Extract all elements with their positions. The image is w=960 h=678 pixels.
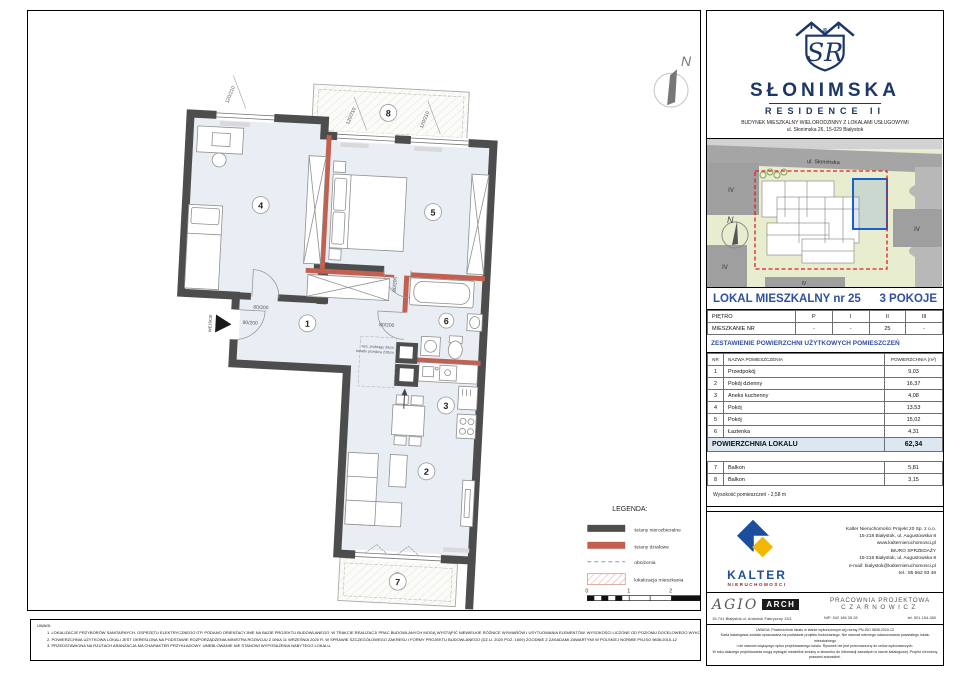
table-row: MIESZKANIE NR- -25 - [708, 323, 943, 335]
svg-text:II: II [823, 27, 827, 34]
legend-swatch-partition [587, 542, 625, 549]
chair [212, 153, 227, 168]
svg-text:IV: IV [914, 227, 920, 233]
contact-line: 15-218 Białystok, ul. Augustowska 8 [803, 555, 936, 562]
sr-monogram: SR [807, 38, 844, 68]
svg-text:IV: IV [722, 265, 728, 271]
note-item: 3. PRZEDSTAWIONA NA RZUTACH ARANŻACJA MA… [37, 643, 694, 650]
street-label: ul. Słonimska [807, 159, 841, 166]
building-description: BUDYNEK MIESZKALNY WIELORODZINNY Z LOKAL… [711, 120, 939, 126]
contact-line: 15-218 Białystok, ul. Augustowska 8 [803, 533, 936, 540]
scale-bar: 0 1 2 3 [585, 589, 700, 601]
svg-text:80/200: 80/200 [379, 322, 395, 329]
architect-address: 15-741 Białystok ul. Antoniuk Fabryczny … [712, 616, 822, 621]
svg-text:1: 1 [305, 319, 311, 329]
table-row: 5Pokój15,02 [708, 414, 943, 426]
legend: LEGENDA: ściany nierozbieralne ściany dz… [587, 506, 683, 585]
kalter-subname: NIERUCHOMOŚCI [711, 582, 803, 587]
apartment-outline [168, 114, 494, 561]
svg-text:ściany działowe: ściany działowe [634, 544, 669, 550]
svg-text:2: 2 [424, 467, 430, 477]
stove [456, 414, 476, 439]
svg-text:4: 4 [258, 200, 264, 210]
agio-logo-block: AGIO ARCH 15-741 Białystok ul. Antoniuk … [712, 597, 822, 621]
svg-text:N: N [727, 215, 734, 225]
contact-line: www.kalternieruchomosci.pl [803, 540, 936, 547]
chair [411, 396, 423, 406]
table-row: 1Przedpokój9,03 [708, 366, 943, 378]
disclaimer-line: W toku dalszego projektowania mogą wystą… [711, 650, 939, 661]
info-panel: II SR SŁONIMSKA RESIDENCE II BUDYNEK MIE… [706, 10, 944, 666]
fridge [458, 386, 478, 410]
table-row: 6Łazienka4,31 [708, 426, 943, 438]
brand-underline [769, 103, 881, 104]
balcony-table: 7Balkon5,81 8Balkon3,15 [707, 461, 943, 486]
developer-logo-block: II SR SŁONIMSKA RESIDENCE II BUDYNEK MIE… [707, 11, 943, 139]
brand-name: SŁONIMSKA [711, 80, 939, 102]
coffee-table [389, 454, 408, 487]
contact-line: tel.: 85 662 93 48 [803, 570, 936, 577]
svg-text:80/200: 80/200 [253, 305, 269, 312]
svg-text:IV: IV [728, 188, 734, 194]
site-plan: ul. Słonimska IV IV IV IV [707, 139, 943, 288]
unit-title-bar: LOKAL MIESZKALNY nr 25 3 POKOJE [707, 288, 943, 310]
area-table: NR NAZWA POMIESZCZENIA POWIERZCHNIA (m²)… [707, 353, 943, 452]
table-row: 3Aneks kuchenny4,08 [708, 390, 943, 402]
floor-table: PIĘTROP III III MIESZKANIE NR- -25 - [707, 310, 943, 335]
svg-text:1: 1 [627, 589, 630, 595]
svg-text:7: 7 [395, 577, 401, 587]
sr-emblem-icon: II SR [782, 17, 868, 73]
highlighted-unit [853, 179, 887, 229]
building-address: ul. Słonimska 26, 15-029 Białystok [711, 127, 939, 133]
table-row: 2Pokój dzienny16,37 [708, 378, 943, 390]
note-item: 2. POWIERZCHNIA UŻYTKOWA LOKALI JEST OKR… [37, 637, 694, 644]
contact-line: BIURO SPRZEDAŻY [803, 548, 936, 555]
unit-number-title: LOKAL MIESZKALNY nr 25 [713, 293, 861, 305]
notes-box: UWAGI: 1. LOKALIZACJE PRZYBORÓW SANITARN… [30, 619, 701, 661]
note-item: 1. LOKALIZACJE PRZYBORÓW SANITARNYCH, OS… [37, 630, 694, 637]
north-arrow-icon: N [654, 53, 692, 107]
agio-arch-badge: ARCH [762, 599, 799, 610]
chair [396, 395, 408, 405]
nightstand [333, 161, 346, 173]
area-table-section: NR NAZWA POMIESZCZENIA POWIERZCHNIA (m²)… [707, 353, 943, 507]
svg-text:lokalizacja mieszkania: lokalizacja mieszkania [634, 578, 683, 584]
ceiling-height-note: Wysokość pomieszczeń - 2,58 m [707, 486, 943, 506]
north-label: N [681, 53, 692, 69]
table-row: 4Pokój13,53 [708, 402, 943, 414]
dining-table [391, 405, 424, 437]
kalter-logo-block: KALTER NIERUCHOMOŚCI [711, 517, 803, 587]
floorplan-frame: N [27, 10, 701, 611]
total-area-label: POWIERZCHNIA LOKALU [708, 438, 885, 452]
kitchen-sink [422, 366, 433, 377]
brand-subname: RESIDENCE II [711, 106, 939, 116]
legend-swatch-location [587, 574, 625, 585]
entrance-label: WEJŚCIE [207, 314, 213, 332]
kalter-name: KALTER [711, 568, 803, 582]
svg-text:8: 8 [386, 108, 392, 118]
chair [394, 436, 406, 446]
catalog-page: N [0, 0, 960, 678]
svg-text:0: 0 [585, 589, 588, 595]
table-row: 8Balkon3,15 [708, 474, 943, 486]
rooms-count-title: 3 POKOJE [879, 293, 937, 305]
svg-text:ściany nierozbieralne: ściany nierozbieralne [634, 527, 681, 533]
svg-text:90/200: 90/200 [242, 320, 258, 327]
nightstand [329, 249, 342, 261]
agio-name: AGIO [712, 597, 758, 613]
agency-block: KALTER NIERUCHOMOŚCI Kalter Nieruchomośc… [707, 511, 943, 593]
architect-tel: tel. 501-154-380 [908, 615, 936, 620]
entrance-marker: WEJŚCIE [207, 314, 232, 333]
svg-text:6: 6 [444, 316, 450, 326]
architect-block: AGIO ARCH 15-741 Białystok ul. Antoniuk … [707, 593, 943, 625]
contact-line: Kalter Nieruchomości Projekt 20 Sp. z o.… [803, 526, 936, 533]
pracownia-line2: CZARNOWICZ [822, 604, 938, 611]
table-header-row: NR NAZWA POMIESZCZENIA POWIERZCHNIA (m²) [708, 354, 943, 366]
kalter-logo-icon [737, 517, 777, 561]
svg-text:2: 2 [669, 589, 672, 595]
total-area-row: POWIERZCHNIA LOKALU 62,34 [708, 438, 943, 452]
agency-contact: Kalter Nieruchomości Projekt 20 Sp. z o.… [803, 526, 939, 578]
pracownia-block: PRACOWNIA PROJEKTOWA CZARNOWICZ NIP: 542… [822, 597, 938, 621]
area-table-heading: ZESTAWIENIE POWIERZCHNI UŻYTKOWYCH POMIE… [707, 335, 943, 353]
svg-text:obniżenia: obniżenia [634, 560, 656, 566]
svg-text:IV: IV [802, 281, 807, 287]
svg-text:120/210: 120/210 [224, 85, 237, 104]
disclaimer-line: Karta katalogowa została opracowana na p… [711, 633, 939, 644]
contact-line: e-mail: bialystok@kalternieruchomosci.pl [803, 563, 936, 570]
legend-title: LEGENDA: [612, 506, 647, 513]
svg-text:3: 3 [443, 401, 449, 411]
total-area-value: 62,34 [885, 438, 943, 452]
architect-nip: NIP: 542 186 35 28 [824, 615, 858, 620]
table-gap [707, 452, 943, 461]
pracownia-line1: PRACOWNIA PROJEKTOWA [822, 597, 938, 604]
legend-swatch-structural [587, 525, 625, 532]
chair [409, 436, 421, 446]
svg-text:80/200: 80/200 [392, 276, 399, 292]
wall-chunk [465, 560, 476, 609]
table-row: 7Balkon5,81 [708, 462, 943, 474]
floorplan-drawing: N [28, 11, 700, 610]
notes-title: UWAGI: [37, 623, 694, 630]
disclaimer-block: UWAGA: Powierzchnia lokalu w stanie wyko… [707, 625, 943, 665]
table-row: PIĘTROP III III [708, 311, 943, 323]
svg-text:5: 5 [430, 207, 436, 217]
